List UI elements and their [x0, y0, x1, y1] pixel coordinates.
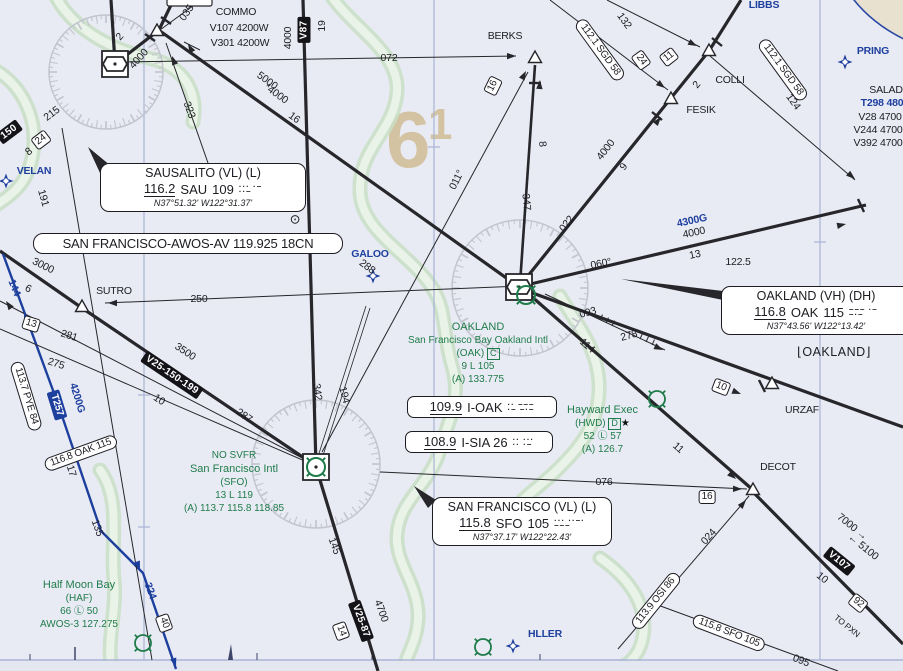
- navaid-box-sausalito: SAUSALITO (VL) (L) 116.2 SAU 109 ··· ·–·…: [100, 163, 306, 212]
- map-label-113.9-osi-86: 113.9 OSI 86: [629, 570, 683, 631]
- morse-code: ·· –––·– –·–: [508, 402, 535, 412]
- localizer-freq: 109.9: [430, 399, 463, 415]
- map-label-114: 114: [577, 337, 596, 356]
- map-label-11: 11: [671, 441, 686, 456]
- navaid-channel: 109: [212, 182, 234, 197]
- morse-code: ·· ····· ·–: [513, 437, 535, 447]
- map-label-250: 250: [191, 294, 208, 305]
- map-label--oakland-: ⌊OAKLAND⌋: [797, 346, 871, 359]
- map-label-275: 275: [46, 357, 65, 372]
- map-label-145: 145: [326, 536, 342, 555]
- map-label-3000: 3000: [31, 256, 56, 275]
- map-label-112.1-sgd-58: 112.1 SGD 58: [756, 37, 810, 104]
- map-label-287: 287: [234, 407, 254, 425]
- map-label-11: 11: [658, 47, 679, 68]
- navaid-name: SAN FRANCISCO (VL) (L): [437, 500, 607, 514]
- map-label-194: 194: [337, 386, 351, 405]
- map-label-sutro: SUTRO: [96, 286, 132, 297]
- localizer-box-isia: 108.9 I-SIA 26 ·· ····· ·–: [405, 431, 553, 453]
- map-label-16: 16: [483, 75, 503, 96]
- map-label-13: 13: [688, 249, 701, 262]
- navaid-coords: N37°51.32' W122°31.37': [105, 198, 301, 208]
- map-label-v28-4700: V28 4700: [858, 112, 901, 123]
- map-label-4000: 4000: [283, 27, 294, 50]
- map-label-278: 278: [619, 329, 638, 344]
- navaid-freq-line: 116.8 OAK 115 ––– ·––·–: [726, 304, 903, 320]
- map-label-191: 191: [36, 188, 51, 207]
- map-label-galoo: GALOO: [351, 249, 389, 260]
- map-label-v301-4200w: V301 4200W: [211, 38, 270, 49]
- map-label-095: 095: [791, 653, 811, 669]
- route-labels-layer: 035COMMOV107 4200WV301 4200W072V87400019…: [0, 0, 903, 671]
- map-label-323: 323: [181, 100, 197, 119]
- map-label-hller: HLLER: [528, 629, 562, 640]
- map-label--: ⊙: [290, 213, 301, 226]
- map-label-4700: 4700: [372, 599, 390, 624]
- navaid-channel: 115: [823, 305, 844, 320]
- map-label-to-pxn: TO PXN: [833, 613, 862, 639]
- map-label-2: 2: [114, 31, 126, 42]
- map-label-347: 347: [520, 193, 532, 211]
- map-label-4000: 4000: [128, 47, 151, 71]
- map-label-urzaf: URZAF: [785, 405, 819, 416]
- map-label-342: 342: [311, 383, 324, 401]
- map-label-215: 215: [42, 105, 62, 124]
- navaid-freq: 116.2: [144, 181, 176, 197]
- map-label-132: 132: [615, 11, 633, 31]
- map-label-salad: SALAD: [869, 85, 902, 96]
- navaid-coords: N37°43.56' W122°13.42': [726, 321, 903, 331]
- map-label-112.1-sgd-58: 112.1 SGD 58: [573, 17, 627, 84]
- map-label-24: 24: [630, 49, 651, 71]
- map-label-281: 281: [59, 329, 78, 344]
- map-label-40: 40: [155, 613, 174, 634]
- map-label-3500: 3500: [173, 341, 198, 362]
- map-label-10: 10: [814, 570, 829, 585]
- map-label-135: 135: [89, 518, 105, 537]
- map-label-4000: 4000: [595, 138, 617, 162]
- map-label-8: 8: [24, 146, 35, 158]
- navaid-freq-line: 116.2 SAU 109 ··· ·–··–: [105, 181, 301, 197]
- map-label-16: 16: [699, 490, 716, 504]
- map-label-commo: COMMO: [216, 7, 256, 18]
- map-label-v107-4200w: V107 4200W: [210, 23, 269, 34]
- map-label-10: 10: [711, 377, 732, 396]
- localizer-ident: I-SIA 26: [461, 435, 507, 450]
- map-label-022: 022: [558, 214, 577, 234]
- localizer-freq: 108.9: [424, 434, 457, 450]
- map-label-v107: V107: [823, 546, 856, 576]
- map-label-011-: 011°: [448, 169, 466, 192]
- enroute-chart: 6 1 OAKLAND San Francisco Bay Oakland In…: [0, 0, 903, 671]
- navaid-box-san-francisco: SAN FRANCISCO (VL) (L) 115.8 SFO 105 ···…: [432, 497, 612, 546]
- navaid-coords: N37°37.17' W122°22.43': [437, 532, 607, 542]
- map-label-093: 093: [578, 306, 597, 321]
- map-label-150: 150: [0, 119, 23, 144]
- map-label-122.5: 122.5: [725, 257, 750, 268]
- map-label-decot: DECOT: [760, 462, 796, 473]
- map-label-pring: PRING: [857, 46, 889, 57]
- map-label-072: 072: [381, 53, 398, 64]
- map-label-13: 13: [21, 315, 41, 333]
- map-label-076: 076: [596, 477, 613, 488]
- morse-code: ··· ··–·–––: [554, 518, 585, 528]
- map-label-17: 17: [64, 464, 77, 478]
- map-label-024: 024: [699, 527, 718, 547]
- map-label-060-: 060°: [590, 257, 613, 271]
- map-label-4000: 4000: [682, 226, 706, 241]
- map-label-8: 8: [536, 141, 547, 148]
- morse-code: ··· ·–··–: [239, 184, 262, 194]
- map-label-velan: VELAN: [17, 166, 52, 177]
- navaid-freq: 115.8: [459, 515, 491, 531]
- map-label-fesik: FESIK: [686, 105, 715, 116]
- navaid-freq-line: 115.8 SFO 105 ··· ··–·–––: [437, 515, 607, 531]
- navaid-name: OAKLAND (VH) (DH): [726, 289, 903, 303]
- map-label-115.8-sfo-105: 115.8 SFO 105: [691, 613, 767, 653]
- map-label-v392-4700: V392 4700: [854, 138, 903, 149]
- navaid-ident: OAK: [791, 305, 818, 320]
- map-label-10: 10: [151, 392, 166, 407]
- navaid-box-oakland: OAKLAND (VH) (DH) 116.8 OAK 115 ––– ·––·…: [721, 286, 903, 335]
- awos-box: SAN FRANCISCO-AWOS-AV 119.925 18CN: [33, 233, 343, 254]
- map-label-libbs: LIBBS: [749, 0, 780, 10]
- navaid-name: SAUSALITO (VL) (L): [105, 166, 301, 180]
- map-label-colli: COLLI: [715, 75, 744, 86]
- navaid-ident: SAU: [180, 182, 207, 197]
- map-label-2: 2: [691, 80, 703, 91]
- map-label-116.8-oak-115: 116.8 OAK 115: [43, 433, 119, 472]
- map-label-14: 14: [332, 621, 351, 642]
- navaid-channel: 105: [527, 516, 549, 531]
- map-label-92: 92: [847, 592, 869, 613]
- map-label-144: 144: [6, 278, 22, 298]
- map-label-v25-87: V25-87: [348, 599, 374, 642]
- map-label-berks: BERKS: [488, 31, 523, 42]
- map-label-288: 288: [357, 258, 377, 277]
- morse-code: ––– ·––·–: [849, 307, 878, 317]
- localizer-box-ioak: 109.9 I-OAK ·· –––·– –·–: [407, 396, 557, 418]
- map-label-v87: V87: [298, 17, 311, 43]
- map-label-16: 16: [286, 110, 301, 125]
- map-label--4000: *4000: [262, 82, 290, 106]
- map-label-t257: T257: [47, 389, 68, 421]
- map-label-9: 9: [618, 162, 630, 173]
- map-label-4200g: 4200G: [68, 382, 87, 414]
- map-label-24: 24: [30, 129, 52, 150]
- navaid-ident: SFO: [496, 516, 523, 531]
- map-label-v244-4700: V244 4700: [854, 125, 903, 136]
- map-label-19: 19: [317, 20, 328, 31]
- map-label-t298-480: T298 480: [861, 98, 903, 109]
- map-label-035: 035: [178, 3, 196, 23]
- map-label-113.7-pye-84: 113.7 PYE 84: [9, 360, 43, 432]
- map-label-324: 324: [142, 581, 158, 600]
- map-label-6: 6: [23, 283, 33, 295]
- localizer-ident: I-OAK: [467, 400, 502, 415]
- navaid-freq: 116.8: [754, 304, 786, 320]
